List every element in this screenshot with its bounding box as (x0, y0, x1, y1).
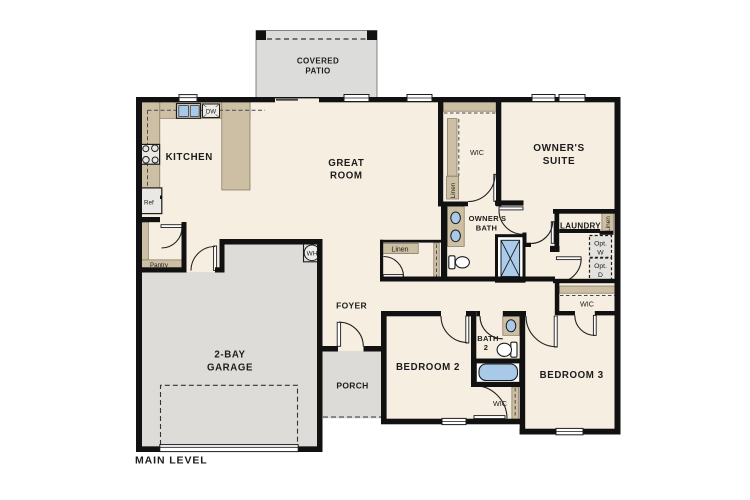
svg-text:BEDROOM 2: BEDROOM 2 (396, 362, 460, 373)
svg-text:BEDROOM 3: BEDROOM 3 (540, 370, 604, 381)
svg-text:WH: WH (307, 250, 318, 257)
svg-text:DW: DW (206, 109, 216, 116)
svg-text:BATH: BATH (477, 334, 498, 343)
svg-text:FOYER: FOYER (336, 301, 367, 311)
svg-text:COVERED: COVERED (297, 57, 339, 66)
svg-text:WIC: WIC (470, 148, 484, 157)
svg-text:GARAGE: GARAGE (207, 363, 253, 374)
svg-text:ROOM: ROOM (330, 171, 363, 182)
svg-text:PORCH: PORCH (336, 380, 368, 390)
svg-text:D: D (598, 272, 603, 279)
svg-text:BATH: BATH (476, 224, 497, 233)
svg-text:WIC: WIC (580, 300, 594, 309)
svg-text:W: W (597, 250, 604, 257)
svg-text:KITCHEN: KITCHEN (166, 152, 213, 163)
svg-text:Opt.: Opt. (594, 263, 607, 270)
svg-text:Linen: Linen (450, 182, 457, 198)
svg-text:Linen: Linen (391, 246, 408, 253)
svg-text:Linen: Linen (605, 216, 612, 232)
svg-text:Opt.: Opt. (594, 241, 607, 248)
svg-text:2: 2 (484, 343, 488, 352)
svg-text:SUITE: SUITE (543, 156, 575, 167)
svg-text:Ref: Ref (144, 200, 154, 207)
svg-text:GREAT: GREAT (328, 158, 364, 169)
svg-text:LAUNDRY: LAUNDRY (560, 221, 601, 230)
svg-text:2-BAY: 2-BAY (214, 350, 245, 361)
svg-text:OWNER'S: OWNER'S (533, 143, 585, 154)
svg-text:MAIN LEVEL: MAIN LEVEL (135, 455, 208, 467)
svg-text:PATIO: PATIO (305, 67, 330, 76)
